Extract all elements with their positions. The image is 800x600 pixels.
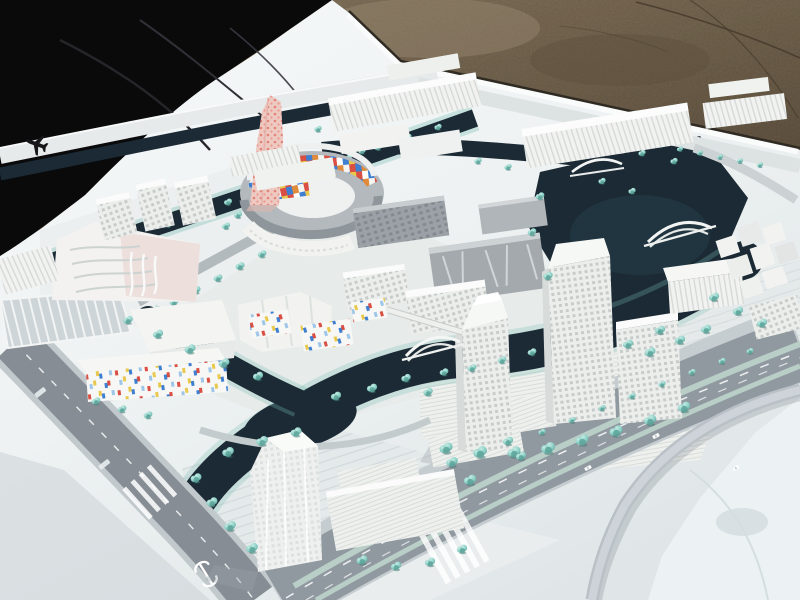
lot-smudge — [716, 508, 768, 536]
model-photo-svg — [0, 0, 800, 600]
gravel-dark-patch — [530, 34, 710, 86]
photo-architectural-model — [0, 0, 800, 600]
